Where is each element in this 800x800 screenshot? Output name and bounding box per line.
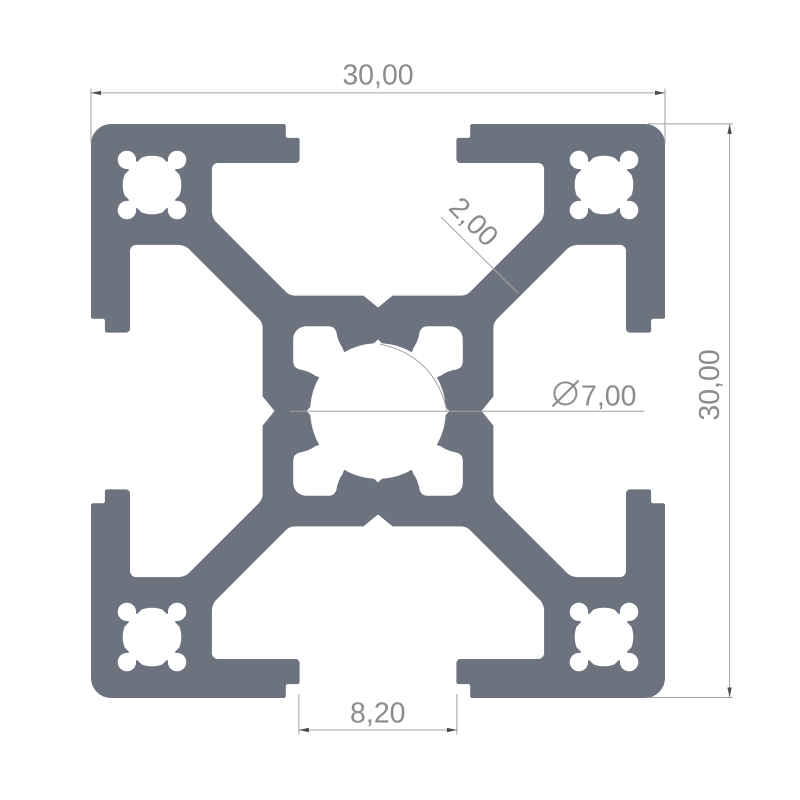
svg-text:8,20: 8,20 xyxy=(350,698,405,730)
svg-text:30,00: 30,00 xyxy=(694,349,726,420)
svg-text:7,00: 7,00 xyxy=(581,381,636,413)
svg-text:30,00: 30,00 xyxy=(342,60,413,92)
